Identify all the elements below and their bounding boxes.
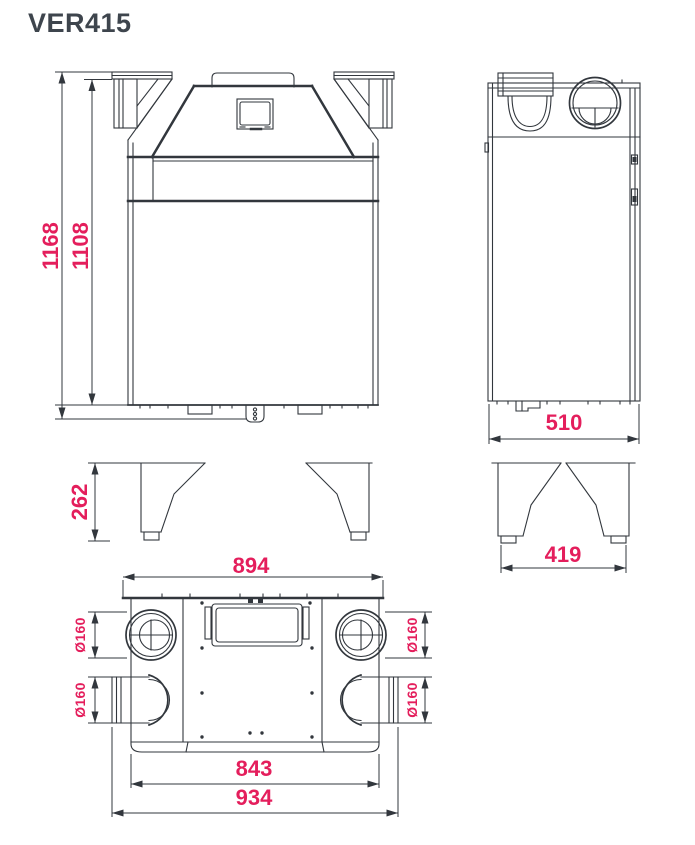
dim-label-leg-base-depth: 419 — [545, 544, 582, 566]
dim-label-duct-bottom-left: Ø160 — [73, 682, 87, 717]
dim-label-top-overall-width: 934 — [236, 787, 273, 809]
dim-label-duct-top-right: Ø160 — [405, 617, 419, 652]
front-view — [112, 72, 394, 422]
side-view — [485, 73, 640, 411]
drawing-canvas: VER415 — [0, 0, 695, 845]
dim-label-front-total-height: 1168 — [40, 222, 62, 270]
dim-label-side-depth: 510 — [546, 412, 583, 434]
legs-side-view — [492, 463, 635, 543]
technical-drawing — [0, 0, 695, 845]
dim-label-top-flange-width: 894 — [233, 555, 270, 577]
top-view — [112, 594, 398, 752]
dim-label-top-body-width: 843 — [236, 758, 273, 780]
dim-label-leg-height: 262 — [69, 484, 91, 521]
dim-label-front-body-height: 1108 — [70, 222, 92, 270]
dim-label-duct-top-left: Ø160 — [73, 617, 87, 652]
dim-label-duct-bottom-right: Ø160 — [405, 682, 419, 717]
dimension-linework — [55, 72, 639, 817]
legs-front-view — [137, 463, 372, 540]
